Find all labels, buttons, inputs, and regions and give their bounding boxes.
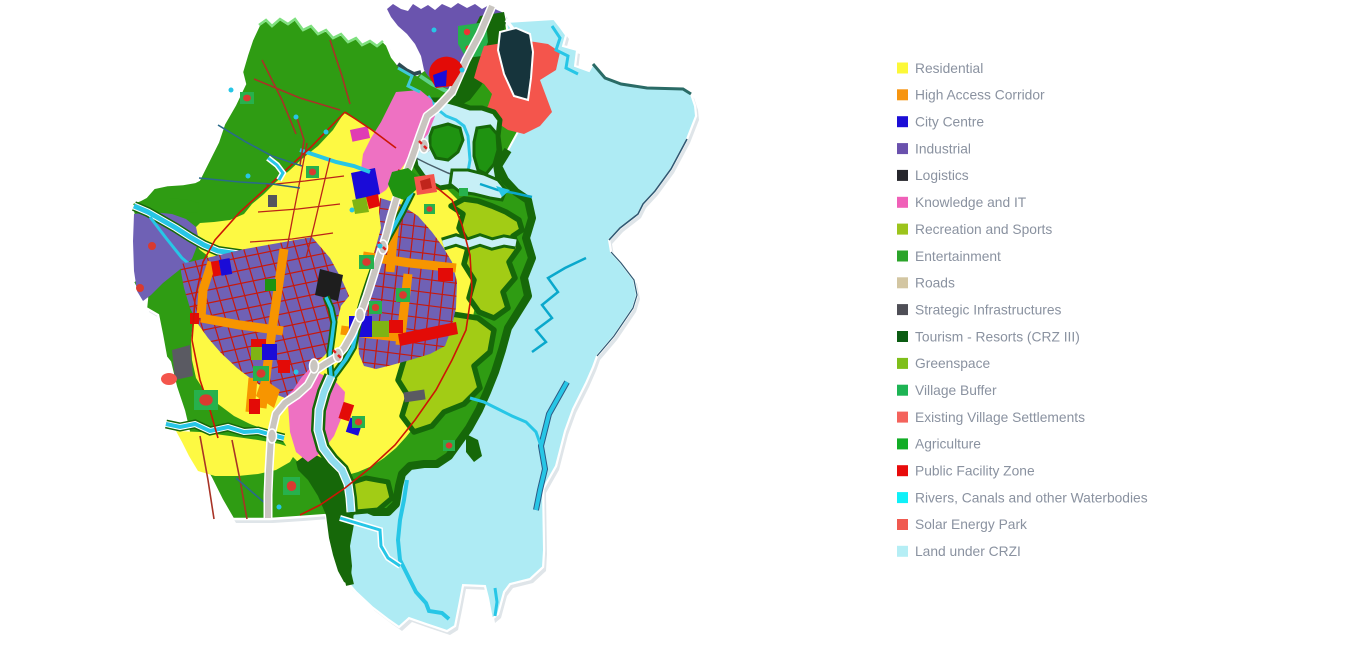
svg-text:Village Buffer: Village Buffer — [915, 383, 997, 398]
svg-text:Residential: Residential — [915, 61, 983, 76]
svg-text:Industrial: Industrial — [915, 141, 971, 156]
svg-text:High Access Corridor: High Access Corridor — [915, 88, 1045, 103]
svg-text:Strategic Infrastructures: Strategic Infrastructures — [915, 302, 1062, 317]
svg-text:Existing Village Settlements: Existing Village Settlements — [915, 410, 1085, 425]
svg-text:Roads: Roads — [915, 276, 955, 291]
svg-text:Public Facility Zone: Public Facility Zone — [915, 464, 1035, 479]
svg-text:City Centre: City Centre — [915, 115, 984, 130]
svg-text:Tourism - Resorts (CRZ III): Tourism - Resorts (CRZ III) — [915, 329, 1080, 344]
svg-text:Rivers, Canals and other Water: Rivers, Canals and other Waterbodies — [915, 490, 1148, 505]
svg-text:Agriculture: Agriculture — [915, 437, 981, 452]
svg-text:Solar Energy Park: Solar Energy Park — [915, 517, 1027, 532]
svg-text:Knowledge and IT: Knowledge and IT — [915, 195, 1027, 210]
svg-text:Land under CRZI: Land under CRZI — [915, 544, 1021, 559]
svg-text:Entertainment: Entertainment — [915, 249, 1001, 264]
svg-text:Greenspace: Greenspace — [915, 356, 990, 371]
svg-text:Logistics: Logistics — [915, 168, 969, 183]
svg-text:Recreation and Sports: Recreation and Sports — [915, 222, 1052, 237]
